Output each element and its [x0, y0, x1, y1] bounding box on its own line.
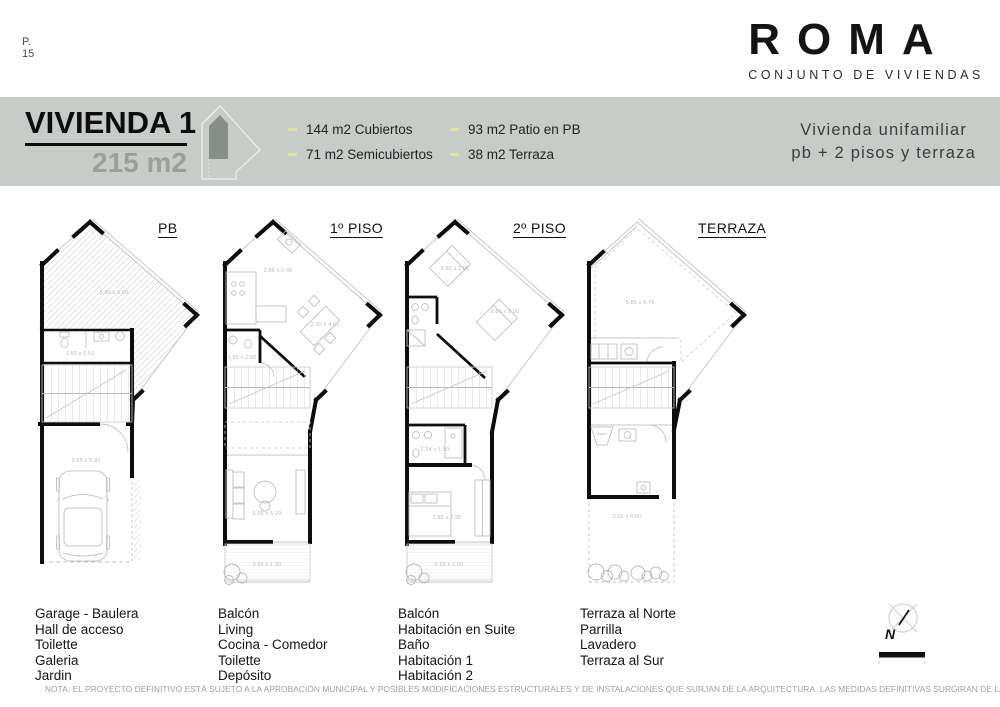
north-compass-icon: N [876, 598, 930, 672]
dim-balcon: 3.65 x 1.50 [253, 562, 282, 568]
page-title: VIVIENDA 1 [25, 105, 187, 146]
suite-bath-fixtures [412, 428, 462, 458]
room-item: Terraza al Sur [580, 653, 676, 669]
dim-patio: 5.86 x 3.00 [100, 290, 129, 296]
terrace-plants [588, 564, 669, 582]
dim-living: 3.65 x 5.20 [253, 511, 282, 517]
room-item: Balcón [398, 606, 515, 622]
room-list-pb: Garage - Baulera Hall de acceso Toilette… [35, 606, 139, 684]
scale-bar [879, 652, 925, 658]
toilette-fixtures [60, 332, 124, 348]
room-item: Toilette [35, 637, 139, 653]
parrilla [591, 427, 650, 493]
bullet-dash-icon [450, 128, 459, 131]
dim-terraza-norte: 5.86 x 5.76 [626, 300, 655, 306]
room-item: Lavadero [580, 637, 676, 653]
dim-toilette: 1.50 x 2.53 [66, 351, 95, 357]
area-bullets-col2: 93 m2 Patio en PB 38 m2 Terraza [450, 97, 581, 186]
dim-cocina: 2.86 x 2.40 [264, 268, 293, 274]
unit-highlight [209, 115, 228, 159]
stairs [407, 367, 492, 408]
total-area: 215 m2 [25, 147, 187, 179]
bullet-cubiertos: 144 m2 Cubiertos [288, 122, 433, 137]
room-item: Terraza al Norte [580, 606, 676, 622]
bullet-dash-icon [288, 153, 297, 156]
dim-garage: 3.65 x 5.90 [72, 458, 101, 464]
floor-plan-piso1: 2.86 x 2.40 2.30 x 4.00 1.50 x 2.50 3.65… [213, 212, 395, 610]
north-letter: N [885, 626, 896, 642]
room-item: Depósito [218, 668, 328, 684]
header-band: VIVIENDA 1 215 m2 144 m2 Cubiertos 71 m2… [0, 97, 1000, 186]
deposito [225, 422, 310, 448]
room-item: Habitación 2 [398, 668, 515, 684]
dim-habitacion2: 2.80 x 2.90 [491, 309, 520, 315]
area-bullets-col1: 144 m2 Cubiertos 71 m2 Semicubiertos [288, 97, 433, 186]
room-item: Toilette [218, 653, 328, 669]
dim-bano: 2.54 x 1.50 [421, 447, 450, 453]
room-list-piso1: Balcón Living Cocina - Comedor Toilette … [218, 606, 328, 684]
bullet-terraza: 38 m2 Terraza [450, 147, 581, 162]
stairs [225, 367, 310, 408]
dim-toilette: 1.50 x 2.50 [228, 355, 257, 361]
title-block: VIVIENDA 1 215 m2 [25, 105, 187, 179]
page-number-label: P. [22, 36, 34, 48]
typology-line2: pb + 2 pisos y terraza [791, 142, 976, 165]
room-item: Jardin [35, 668, 139, 684]
room-item: Hall de acceso [35, 622, 139, 638]
brand-name: ROMA [748, 18, 984, 62]
lavadero-fixtures [591, 344, 637, 359]
kitchen [226, 231, 300, 324]
dim-habitacion1: 2.80 x 2.90 [441, 266, 470, 272]
room-list-terraza: Terraza al Norte Parrilla Lavadero Terra… [580, 606, 676, 668]
room-item: Baño [398, 637, 515, 653]
page-number: P. 15 [22, 36, 34, 60]
dim-balcon: 3.65 x 1.50 [435, 562, 464, 568]
page-number-value: 15 [22, 48, 34, 60]
room-item: Balcón [218, 606, 328, 622]
room-list-piso2: Balcón Habitación en Suite Baño Habitaci… [398, 606, 515, 684]
room-item: Garage - Baulera [35, 606, 139, 622]
bullet-dash-icon [288, 128, 297, 131]
brand-block: ROMA CONJUNTO DE VIVIENDAS [748, 18, 984, 82]
bullet-dash-icon [450, 153, 459, 156]
dim-suite: 3.65 x 2.95 [433, 515, 462, 521]
stairs [589, 367, 674, 408]
room-item: Habitación en Suite [398, 622, 515, 638]
floor-plan-piso2: 2.80 x 2.90 2.80 x 2.90 2.54 x 1.50 3.65… [395, 212, 577, 610]
typology-description: Vivienda unifamiliar pb + 2 pisos y terr… [791, 97, 976, 186]
floor-plan-pb: 5.86 x 3.00 1.50 x 2.53 3.65 x 5.90 [30, 212, 212, 610]
dim-terraza-sur: 3.65 x 6.60 [613, 514, 642, 520]
toilette-fixtures [229, 336, 251, 348]
bullet-semicubiertos: 71 m2 Semicubiertos [288, 147, 433, 162]
bed-2 [476, 299, 517, 340]
room-item: Parrilla [580, 622, 676, 638]
brand-subtitle: CONJUNTO DE VIVIENDAS [748, 68, 984, 82]
legal-note: NOTA: EL PROYECTO DEFINITIVO ESTÁ SUJETO… [45, 684, 1000, 694]
floor-plan-terraza: 5.86 x 5.76 3.65 x 6.60 [577, 212, 759, 610]
terrace-dashed-edge [595, 228, 736, 362]
room-item: Galeria [35, 653, 139, 669]
bath-fixtures-top [407, 304, 428, 346]
stairs [42, 365, 132, 422]
bullet-patio: 93 m2 Patio en PB [450, 122, 581, 137]
room-item: Living [218, 622, 328, 638]
room-item: Habitación 1 [398, 653, 515, 669]
car [57, 471, 110, 561]
bedroom-furniture [409, 480, 490, 536]
typology-line1: Vivienda unifamiliar [791, 119, 976, 142]
dim-comedor: 2.30 x 4.00 [311, 322, 340, 328]
room-item: Cocina - Comedor [218, 637, 328, 653]
lot-location-icon [196, 102, 266, 182]
